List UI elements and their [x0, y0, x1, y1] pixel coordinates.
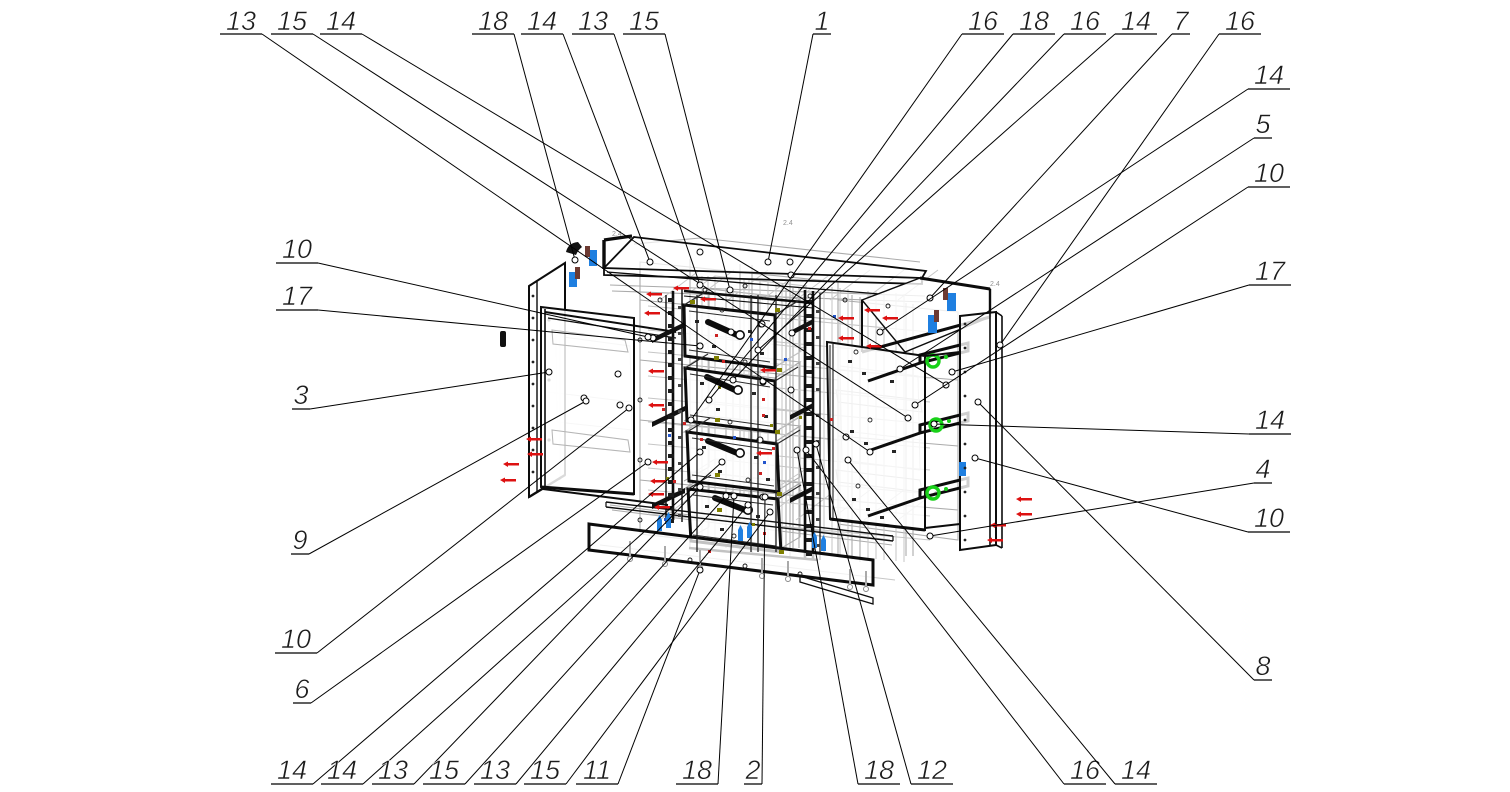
svg-text:3: 3 — [293, 380, 308, 410]
svg-text:7: 7 — [1173, 6, 1189, 36]
svg-text:15: 15 — [277, 6, 308, 36]
svg-text:14: 14 — [327, 755, 357, 785]
svg-text:14: 14 — [1255, 405, 1285, 435]
svg-text:13: 13 — [226, 6, 256, 36]
svg-text:15: 15 — [530, 755, 561, 785]
svg-text:15: 15 — [629, 6, 660, 36]
svg-text:14: 14 — [1121, 6, 1151, 36]
svg-text:18: 18 — [1019, 6, 1049, 36]
svg-text:13: 13 — [578, 6, 608, 36]
svg-text:17: 17 — [282, 281, 313, 311]
svg-text:2.4: 2.4 — [990, 281, 1000, 288]
svg-text:10: 10 — [1254, 158, 1284, 188]
svg-text:14: 14 — [326, 6, 356, 36]
svg-text:2.4: 2.4 — [783, 220, 793, 227]
svg-text:1: 1 — [814, 6, 829, 36]
svg-text:18: 18 — [478, 6, 508, 36]
svg-text:17: 17 — [1255, 256, 1286, 286]
svg-text:14: 14 — [277, 755, 307, 785]
svg-text:11: 11 — [583, 755, 611, 785]
svg-text:10: 10 — [282, 234, 312, 264]
svg-text:15: 15 — [429, 755, 460, 785]
svg-text:10: 10 — [1254, 503, 1284, 533]
svg-text:16: 16 — [1070, 6, 1101, 36]
svg-text:5: 5 — [1255, 109, 1271, 139]
svg-text:16: 16 — [1070, 755, 1101, 785]
svg-text:4: 4 — [1255, 454, 1270, 484]
svg-text:8: 8 — [1255, 651, 1270, 681]
svg-text:12: 12 — [917, 755, 947, 785]
svg-text:13: 13 — [480, 755, 510, 785]
svg-text:14: 14 — [1254, 60, 1284, 90]
svg-text:10: 10 — [281, 624, 311, 654]
svg-text:16: 16 — [1225, 6, 1256, 36]
svg-text:2: 2 — [744, 755, 760, 785]
svg-text:14: 14 — [1121, 755, 1151, 785]
svg-text:18: 18 — [864, 755, 894, 785]
svg-text:14: 14 — [527, 6, 557, 36]
svg-text:13: 13 — [378, 755, 408, 785]
svg-text:9: 9 — [292, 525, 307, 555]
svg-text:16: 16 — [968, 6, 999, 36]
svg-text:18: 18 — [682, 755, 712, 785]
svg-text:6: 6 — [294, 674, 310, 704]
